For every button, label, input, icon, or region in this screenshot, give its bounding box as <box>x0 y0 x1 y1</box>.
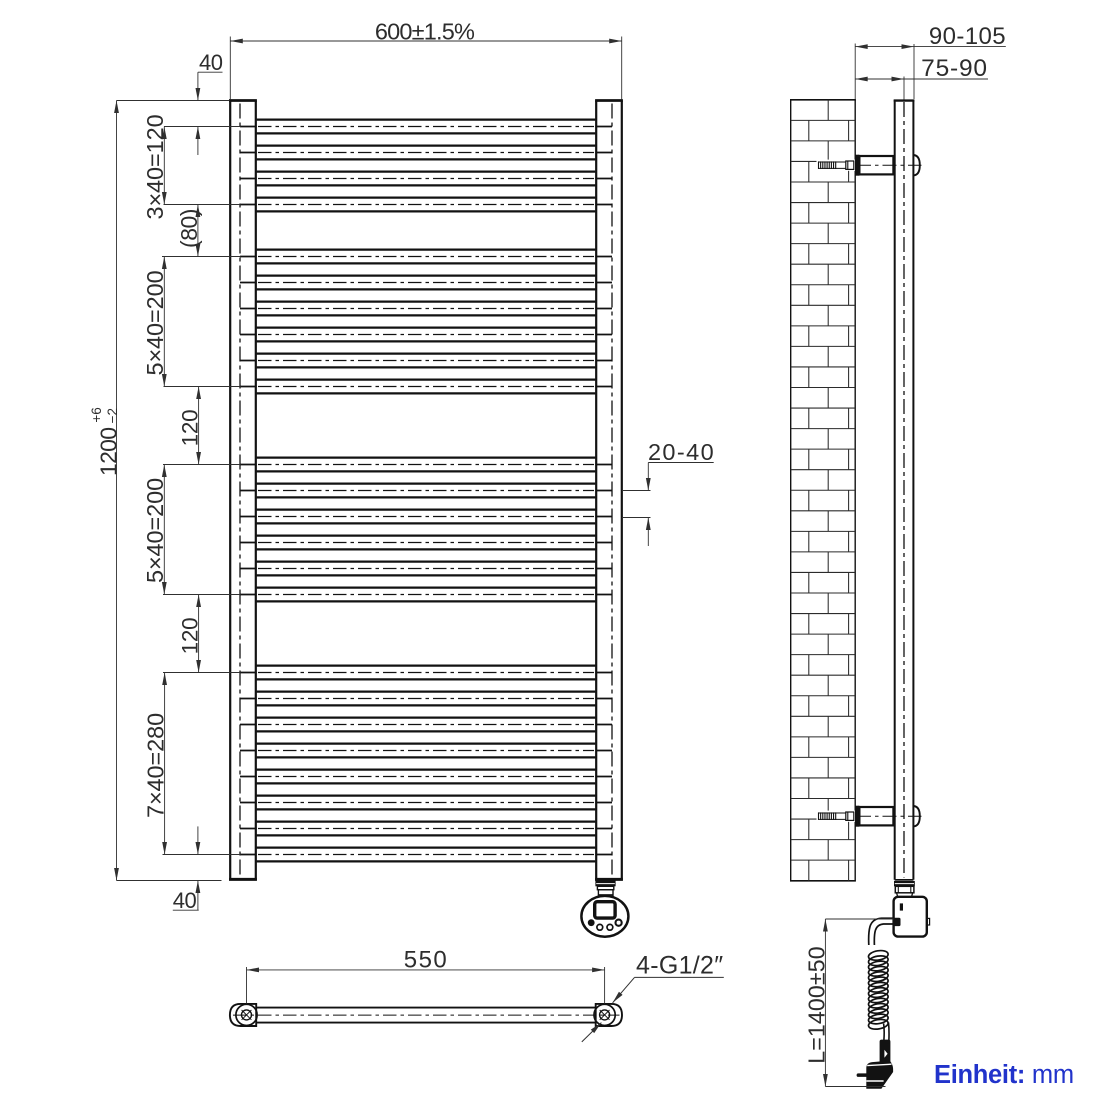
svg-text:120: 120 <box>177 618 202 655</box>
svg-text:7×40=280: 7×40=280 <box>143 713 169 818</box>
svg-text:Einheit: mm: Einheit: mm <box>934 1061 1074 1089</box>
svg-text:90-105: 90-105 <box>929 23 1006 50</box>
svg-text:L=1400±50: L=1400±50 <box>804 946 830 1063</box>
svg-text:120: 120 <box>177 410 202 447</box>
svg-text:600±1.5%: 600±1.5% <box>375 19 475 45</box>
svg-text:5×40=200: 5×40=200 <box>142 270 168 375</box>
svg-text:550: 550 <box>404 947 449 974</box>
svg-text:40: 40 <box>199 50 223 75</box>
svg-text:40: 40 <box>173 888 197 913</box>
svg-text:3×40=120: 3×40=120 <box>142 114 168 219</box>
svg-text:(80): (80) <box>176 209 202 248</box>
svg-text:5×40=200: 5×40=200 <box>142 478 168 583</box>
svg-text:−2: −2 <box>105 408 120 423</box>
svg-text:20-40: 20-40 <box>648 439 715 465</box>
svg-text:75-90: 75-90 <box>921 55 988 82</box>
svg-text:1200: 1200 <box>96 428 122 476</box>
svg-text:4-G1/2″: 4-G1/2″ <box>636 952 723 980</box>
svg-text:+6: +6 <box>89 407 104 422</box>
